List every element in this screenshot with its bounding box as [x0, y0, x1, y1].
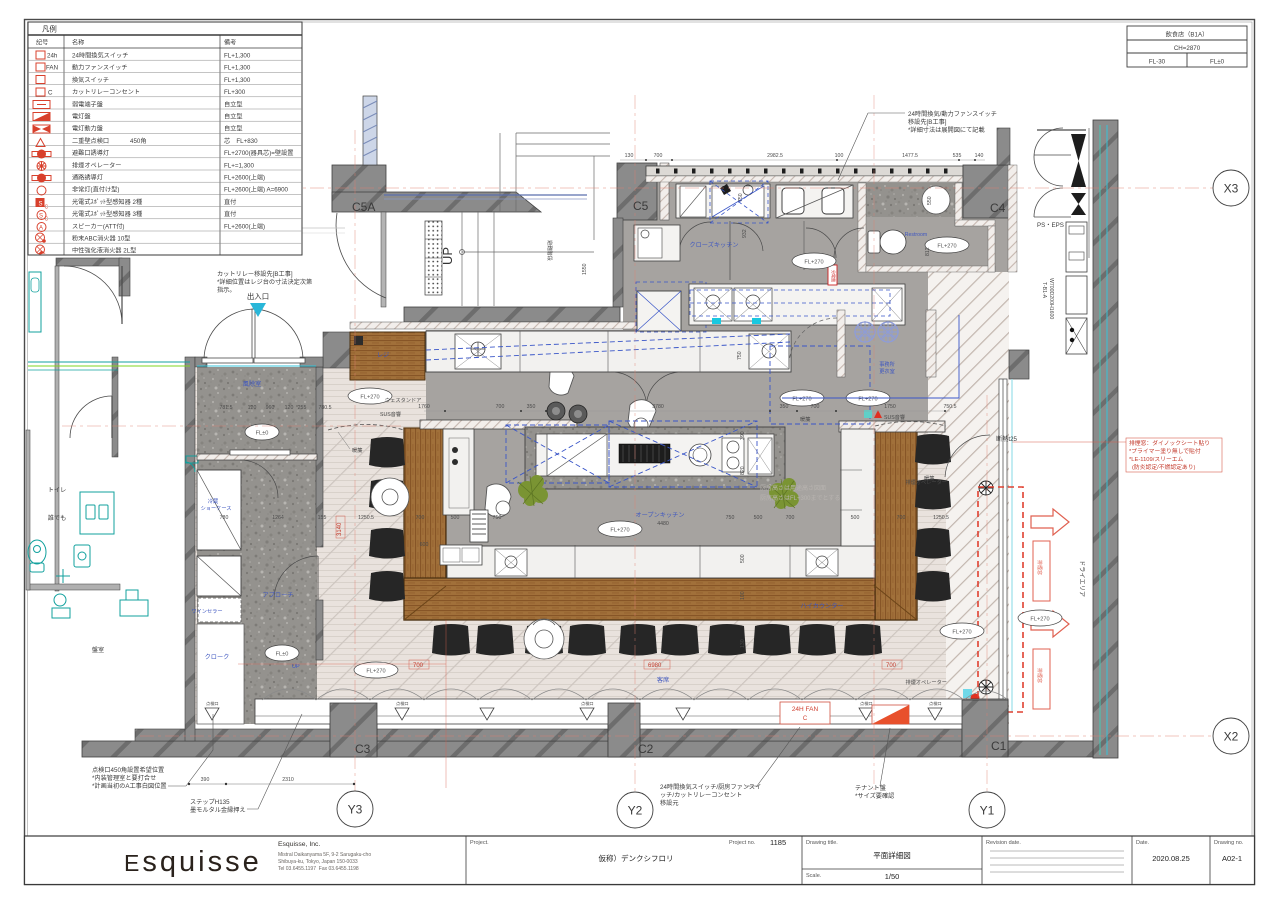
svg-text:記号: 記号: [36, 39, 48, 47]
svg-text:C4: C4: [990, 201, 1006, 215]
svg-text:事務所: 事務所: [879, 360, 895, 368]
svg-text:CH=2870: CH=2870: [1174, 45, 1201, 52]
svg-text:排煙オペレーター: 排煙オペレーター: [72, 161, 122, 169]
svg-text:960: 960: [266, 405, 275, 411]
svg-text:ドライエリア: ドライエリア: [1078, 560, 1085, 597]
svg-text:(防炎認定/不燃認定あり): (防炎認定/不燃認定あり): [1132, 463, 1196, 471]
svg-text:130: 130: [740, 639, 746, 648]
svg-text:FL+2700(器具芯)=壁設置: FL+2700(器具芯)=壁設置: [224, 149, 293, 157]
svg-text:Shibuya-ku, Tokyo, Japan 150-0: Shibuya-ku, Tokyo, Japan 150-0033: [278, 859, 358, 865]
svg-text:ウェスタンドア: ウェスタンドア: [385, 396, 421, 404]
svg-text:1264: 1264: [272, 515, 284, 521]
svg-text:直付: 直付: [224, 198, 236, 206]
svg-text:移設元: 移設元: [660, 799, 679, 807]
svg-text:C1: C1: [991, 739, 1007, 753]
svg-text:FL+270: FL+270: [804, 260, 823, 266]
svg-text:FL+=1,300: FL+=1,300: [224, 162, 254, 169]
svg-text:S: S: [39, 202, 43, 208]
svg-text:130: 130: [625, 153, 634, 159]
svg-text:FL+1,300: FL+1,300: [224, 65, 251, 72]
svg-text:冷蔵: 冷蔵: [208, 497, 219, 505]
svg-text:自立型: 自立型: [224, 100, 243, 108]
svg-text:点検口450角設置希望位置: 点検口450角設置希望位置: [92, 766, 164, 774]
svg-text:ショーケース: ショーケース: [201, 505, 232, 512]
svg-text:*プライマー塗り無しで貼付: *プライマー塗り無しで貼付: [1129, 447, 1201, 455]
svg-text:155: 155: [318, 515, 327, 521]
svg-text:FL+2600(上端): FL+2600(上端): [224, 222, 265, 230]
svg-text:FL+270: FL+270: [858, 397, 877, 403]
svg-text:C: C: [803, 716, 808, 722]
svg-text:更衣室: 更衣室: [879, 367, 895, 375]
svg-text:UP: UP: [440, 247, 455, 265]
svg-text:Y1: Y1: [980, 804, 995, 818]
svg-text:T-B1-A: T-B1-A: [1041, 282, 1047, 299]
svg-text:出入口: 出入口: [247, 292, 269, 301]
svg-text:1550: 1550: [582, 263, 588, 275]
svg-text:700: 700: [496, 404, 505, 410]
svg-text:1760: 1760: [418, 404, 430, 410]
svg-text:S: S: [39, 214, 43, 220]
svg-text:厨房高さは用途高さ図面: 厨房高さは用途高さ図面: [760, 484, 826, 492]
svg-text:500: 500: [740, 554, 746, 563]
svg-text:1250.5: 1250.5: [933, 515, 949, 521]
svg-text:24時間換気/動力ファンスイッチ: 24時間換気/動力ファンスイッチ: [908, 110, 997, 118]
svg-text:120: 120: [285, 405, 294, 411]
svg-text:820: 820: [740, 466, 746, 475]
svg-text:255: 255: [298, 405, 307, 411]
svg-text:弱電端子盤: 弱電端子盤: [72, 100, 103, 108]
svg-text:C: C: [48, 90, 53, 97]
svg-text:*計画当初のA工事白図位置: *計画当初のA工事白図位置: [92, 782, 167, 790]
svg-text:*詳細寸法は展開図にて記載: *詳細寸法は展開図にて記載: [908, 126, 985, 134]
svg-text:Mistral Daikanyama 5F, 9-2 Sar: Mistral Daikanyama 5F, 9-2 Sarugaku-cho: [278, 852, 371, 858]
svg-text:Project.: Project.: [470, 840, 489, 846]
svg-text:C5A: C5A: [352, 200, 375, 214]
svg-text:Date.: Date.: [1136, 840, 1150, 846]
svg-text:名称: 名称: [72, 39, 84, 47]
svg-text:暖簾: 暖簾: [800, 415, 810, 423]
svg-text:*内装管理室と要打合せ: *内装管理室と要打合せ: [92, 774, 156, 782]
svg-text:24H FAN: 24H FAN: [792, 706, 819, 713]
svg-text:凡例: 凡例: [42, 25, 57, 34]
svg-text:550: 550: [927, 196, 933, 205]
svg-text:3780: 3780: [652, 404, 664, 410]
svg-text:FL±0: FL±0: [1210, 59, 1225, 66]
svg-text:FL+2600(上端): FL+2600(上端): [224, 174, 265, 182]
svg-text:レジ: レジ: [377, 352, 389, 359]
svg-text:390: 390: [201, 777, 210, 783]
svg-text:光電式ｽﾎﾟｯﾄ型感知器 2種: 光電式ｽﾎﾟｯﾄ型感知器 2種: [72, 198, 142, 206]
svg-text:700: 700: [786, 515, 795, 521]
svg-text:排煙オペレーター: 排煙オペレーター: [905, 478, 947, 486]
svg-text:1750: 1750: [884, 404, 896, 410]
svg-text:24時間換気スイッチ: 24時間換気スイッチ: [72, 52, 128, 60]
svg-text:FL+270: FL+270: [610, 528, 629, 534]
svg-text:分電盤: 分電盤: [831, 270, 837, 282]
svg-text:100: 100: [740, 591, 746, 600]
svg-text:932: 932: [742, 229, 748, 238]
svg-text:4480: 4480: [657, 521, 669, 527]
svg-text:C: C: [45, 217, 49, 223]
svg-text:点検口: 点検口: [396, 700, 409, 707]
svg-text:24時間換気スイッチ/厨房ファンスイ: 24時間換気スイッチ/厨房ファンスイ: [660, 783, 761, 791]
svg-text:避難階段: 避難階段: [546, 240, 554, 261]
svg-text:スピーカー(ATT付): スピーカー(ATT付): [72, 222, 124, 230]
svg-text:避難口誘導灯: 避難口誘導灯: [72, 149, 109, 157]
svg-text:クローズキッチン: クローズキッチン: [689, 241, 738, 249]
svg-text:FL-30: FL-30: [1149, 59, 1166, 66]
svg-text:粉末ABC消火器 10型: 粉末ABC消火器 10型: [72, 235, 130, 243]
svg-text:電灯動力盤: 電灯動力盤: [72, 125, 103, 133]
svg-text:盤室: 盤室: [92, 646, 104, 654]
svg-text:平面詳細図: 平面詳細図: [873, 850, 911, 860]
svg-text:風除室: 風除室: [243, 380, 262, 388]
svg-text:点検口: 点検口: [581, 700, 594, 707]
svg-text:PS・EPS: PS・EPS: [1037, 222, 1064, 229]
svg-text:カットリレーコンセント: カットリレーコンセント: [72, 89, 140, 96]
svg-text:Drawing no.: Drawing no.: [1214, 840, 1244, 846]
svg-text:C: C: [45, 205, 49, 211]
svg-text:アプローチ: アプローチ: [263, 592, 294, 599]
svg-text:動力ファンスイッチ: 動力ファンスイッチ: [72, 64, 128, 72]
svg-text:誰でも: 誰でも: [48, 514, 67, 522]
svg-text:墨モルタル金縁押え: 墨モルタル金縁押え: [190, 806, 246, 814]
svg-text:備考: 備考: [224, 39, 236, 47]
svg-text:812: 812: [925, 247, 931, 256]
svg-text:780: 780: [220, 515, 229, 521]
svg-text:FL+270: FL+270: [937, 244, 956, 250]
svg-text:飲食店（B1A）: 飲食店（B1A）: [1166, 31, 1209, 39]
svg-text:FL+1,300: FL+1,300: [224, 53, 251, 60]
svg-text:2310: 2310: [282, 777, 294, 783]
svg-text:700: 700: [886, 663, 897, 669]
svg-text:*サイズ要確認: *サイズ要確認: [855, 792, 894, 800]
svg-text:ワインセラー: ワインセラー: [191, 608, 222, 615]
svg-text:自立型: 自立型: [224, 125, 243, 133]
svg-text:通路誘導灯: 通路誘導灯: [72, 174, 103, 182]
svg-text:Scale.: Scale.: [806, 873, 822, 879]
svg-text:点検口: 点検口: [860, 700, 873, 707]
svg-text:カットリレー移設先[B工事]: カットリレー移設先[B工事]: [217, 270, 293, 278]
svg-text:1/50: 1/50: [885, 872, 900, 881]
svg-text:780.5: 780.5: [319, 405, 332, 411]
svg-text:FAN: FAN: [46, 65, 58, 72]
svg-text:テナント盤: テナント盤: [855, 784, 886, 792]
svg-text:350: 350: [527, 404, 536, 410]
svg-text:客席: 客席: [657, 676, 669, 684]
svg-text:Revision date.: Revision date.: [986, 840, 1021, 846]
svg-text:700: 700: [654, 153, 663, 159]
svg-text:換気スイッチ: 換気スイッチ: [72, 76, 109, 84]
svg-text:535: 535: [953, 153, 962, 159]
svg-text:350: 350: [780, 404, 789, 410]
svg-text:FL+270: FL+270: [792, 397, 811, 403]
svg-text:A02-1: A02-1: [1222, 854, 1242, 863]
svg-text:指示。: 指示。: [217, 286, 236, 294]
svg-text:Esquisse: Esquisse: [124, 846, 262, 878]
svg-text:FL+270: FL+270: [1030, 617, 1049, 623]
svg-text:直付: 直付: [224, 210, 236, 218]
svg-text:芯 FL+830: 芯 FL+830: [224, 137, 258, 145]
svg-text:450角: 450角: [130, 137, 147, 145]
svg-text:FL+270: FL+270: [952, 630, 971, 636]
svg-text:781.5: 781.5: [220, 405, 233, 411]
svg-text:仮称）デンクシフロリ: 仮称）デンクシフロリ: [599, 853, 674, 863]
svg-text:Project no.: Project no.: [729, 840, 756, 846]
svg-text:排煙窓: 排煙窓: [1036, 560, 1043, 575]
svg-text:750: 750: [737, 351, 743, 360]
svg-text:FL±0: FL±0: [276, 652, 289, 658]
svg-text:700: 700: [897, 515, 906, 521]
svg-text:C2: C2: [638, 742, 654, 756]
svg-text:6980: 6980: [648, 663, 662, 669]
svg-text:120: 120: [248, 405, 257, 411]
svg-text:A: A: [39, 226, 43, 232]
svg-text:ハイカウンター: ハイカウンター: [800, 602, 843, 610]
svg-text:24h: 24h: [47, 53, 58, 60]
svg-text:移設先[B工事]: 移設先[B工事]: [908, 118, 947, 126]
svg-text:厨房高さはFL+300までとする: 厨房高さはFL+300までとする: [760, 494, 840, 502]
svg-text:100: 100: [835, 153, 844, 159]
svg-text:光電式ｽﾎﾟｯﾄ型感知器 3種: 光電式ｽﾎﾟｯﾄ型感知器 3種: [72, 210, 142, 218]
svg-text:X3: X3: [1224, 182, 1239, 196]
svg-text:FL+300: FL+300: [224, 89, 246, 96]
svg-text:Tel 03.6455.1197 Fax 03.6455.: Tel 03.6455.1197 Fax 03.6455.1198: [278, 866, 359, 872]
svg-text:FL+270: FL+270: [360, 395, 379, 401]
svg-text:140: 140: [975, 153, 984, 159]
svg-text:SUS音響: SUS音響: [380, 410, 401, 418]
svg-text:FL+2600(上端) A=6900: FL+2600(上端) A=6900: [224, 186, 289, 194]
svg-text:750.5: 750.5: [944, 404, 957, 410]
svg-text:700: 700: [811, 404, 820, 410]
svg-text:W700D200H1600: W700D200H1600: [1048, 278, 1054, 319]
svg-text:クローク: クローク: [205, 654, 230, 661]
svg-text:排煙窓：ダイノックシート貼り: 排煙窓：ダイノックシート貼り: [1129, 439, 1210, 447]
svg-text:Esquisse, Inc.: Esquisse, Inc.: [278, 841, 320, 848]
svg-text:自立型: 自立型: [224, 113, 243, 121]
svg-text:750: 750: [493, 515, 502, 521]
svg-text:非常灯(直付け型): 非常灯(直付け型): [72, 186, 119, 194]
svg-text:2020.08.25: 2020.08.25: [1152, 854, 1190, 863]
svg-text:C5: C5: [633, 199, 649, 213]
svg-text:Y2: Y2: [628, 804, 643, 818]
svg-text:点検口: 点検口: [206, 700, 219, 707]
svg-text:ッチ/カットリレーコンセント: ッチ/カットリレーコンセント: [660, 792, 742, 799]
svg-text:X2: X2: [1224, 730, 1239, 744]
svg-text:FL±0: FL±0: [256, 431, 269, 437]
svg-text:UP: UP: [292, 664, 300, 670]
svg-text:*LE-1109/スリーエム: *LE-1109/スリーエム: [1129, 456, 1184, 463]
svg-text:ステップH135: ステップH135: [190, 799, 230, 806]
svg-text:390: 390: [740, 431, 746, 440]
svg-text:オープンキッチン: オープンキッチン: [635, 512, 684, 519]
svg-text:3140: 3140: [337, 522, 343, 536]
svg-text:700: 700: [416, 515, 425, 521]
svg-text:排煙オペレーター: 排煙オペレーター: [905, 678, 947, 686]
svg-text:500: 500: [754, 515, 763, 521]
svg-text:*詳細位置はレジ台の寸法決定次第: *詳細位置はレジ台の寸法決定次第: [217, 278, 312, 286]
svg-text:1477.5: 1477.5: [902, 153, 918, 159]
svg-text:1250.5: 1250.5: [358, 515, 374, 521]
svg-text:Y3: Y3: [348, 803, 363, 817]
svg-text:排煙窓: 排煙窓: [1036, 668, 1043, 683]
svg-text:500: 500: [451, 515, 460, 521]
svg-text:二重壁点検口: 二重壁点検口: [72, 137, 109, 145]
svg-text:FL+270: FL+270: [366, 669, 385, 675]
svg-text:トイレ: トイレ: [48, 487, 67, 494]
svg-text:750: 750: [726, 515, 735, 521]
svg-text:点検口: 点検口: [929, 700, 942, 707]
svg-text:1185: 1185: [770, 838, 786, 847]
svg-text:750: 750: [738, 193, 744, 202]
svg-text:2982.5: 2982.5: [767, 153, 783, 159]
svg-text:500: 500: [851, 515, 860, 521]
svg-text:電灯盤: 電灯盤: [72, 113, 91, 121]
svg-text:Restroom: Restroom: [905, 232, 928, 238]
svg-text:Drawing title.: Drawing title.: [806, 840, 838, 846]
svg-text:C3: C3: [355, 742, 371, 756]
svg-text:600: 600: [420, 542, 429, 548]
svg-text:SUS音響: SUS音響: [884, 413, 905, 421]
svg-text:暖簾: 暖簾: [352, 446, 362, 454]
svg-text:中性強化液消火器 2L型: 中性強化液消火器 2L型: [72, 247, 136, 255]
svg-text:FL+1,300: FL+1,300: [224, 77, 251, 84]
